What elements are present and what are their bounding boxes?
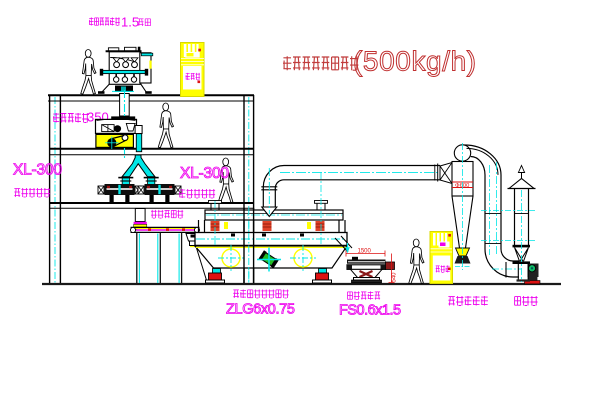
svg-text:ZLG6x0.75: ZLG6x0.75	[226, 302, 295, 318]
svg-text:(500kg/h): (500kg/h)	[353, 46, 477, 77]
svg-text:1.5: 1.5	[121, 15, 139, 30]
svg-text:XL-300: XL-300	[13, 162, 62, 179]
svg-text:XL-300: XL-300	[180, 165, 229, 182]
svg-text:1500: 1500	[358, 249, 372, 255]
svg-text:540: 540	[392, 272, 398, 283]
svg-text:FS0.6x1.5: FS0.6x1.5	[339, 303, 401, 319]
